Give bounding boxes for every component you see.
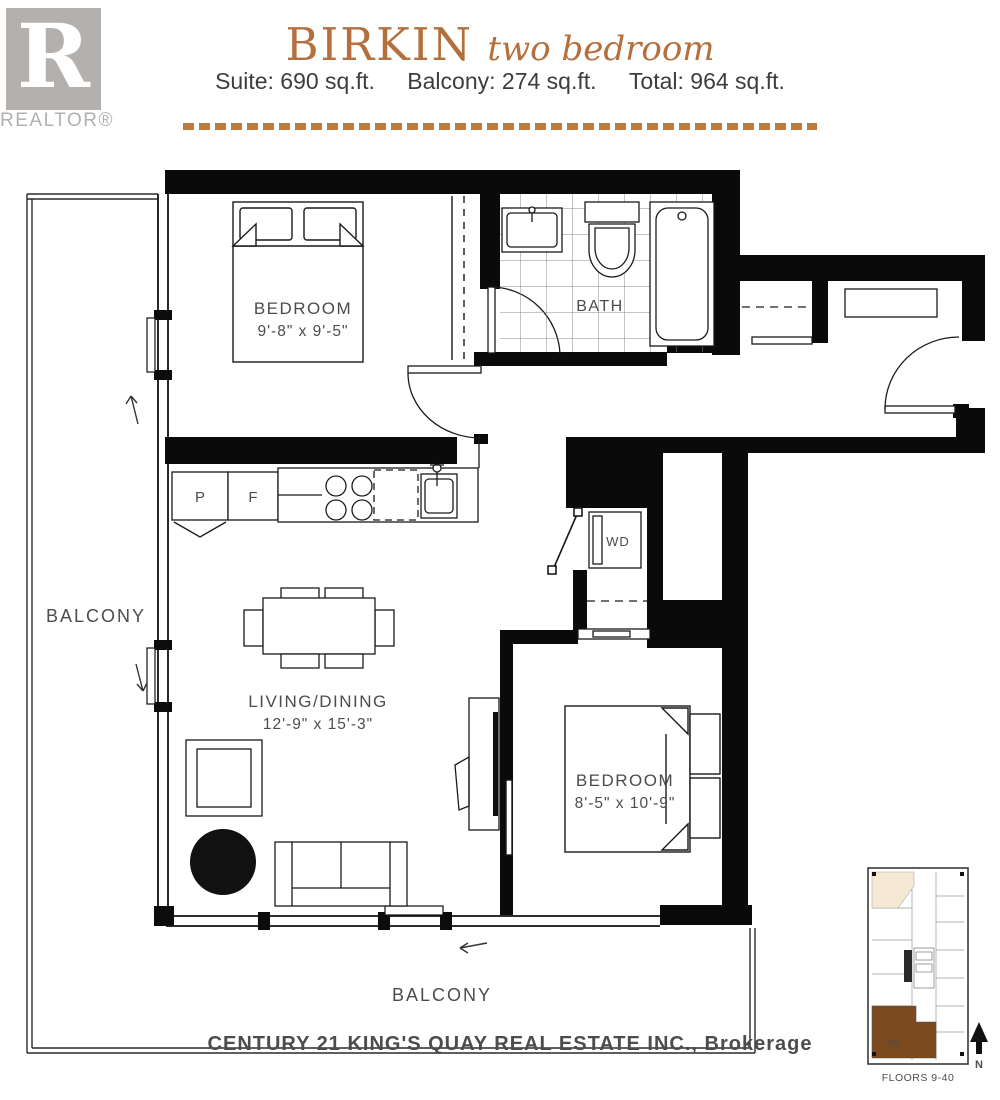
balcony-bottom-label: BALCONY xyxy=(392,985,492,1005)
bedroom2-door xyxy=(578,629,650,639)
bedroom2: BEDROOM 8'-5" x 10'-9" xyxy=(506,706,720,855)
kitchen: P F xyxy=(172,464,478,522)
bed2-headboard-bottom xyxy=(690,778,720,838)
bed2-headboard-top xyxy=(690,714,720,774)
north-arrow: N xyxy=(970,1022,988,1071)
bath-label: BATH xyxy=(576,298,623,315)
balcony-left-label: BALCONY xyxy=(46,606,146,626)
entry-closets xyxy=(742,289,937,344)
fridge-label: F xyxy=(248,489,257,506)
living-dining: LIVING/DINING 12'-9" x 15'-3" xyxy=(186,588,499,906)
bathtub xyxy=(650,202,714,346)
living-label: LIVING/DINING xyxy=(248,692,387,711)
entry-door xyxy=(885,337,959,413)
entry-shelf-right xyxy=(845,289,937,317)
floor-plan: BATH P F xyxy=(0,0,1000,1100)
bedroom1-door xyxy=(408,366,481,438)
laundry-label: WD xyxy=(606,534,630,549)
brokerage-watermark: CENTURY 21 KING'S QUAY REAL ESTATE INC.,… xyxy=(208,1033,813,1055)
laundry-closet: WD xyxy=(587,512,647,601)
dining-table xyxy=(263,598,375,654)
living-dims: 12'-9" x 15'-3" xyxy=(263,716,373,733)
bath-sink xyxy=(502,207,562,252)
toilet xyxy=(585,202,639,277)
keyplan-unit-label: 05 xyxy=(888,1038,900,1050)
bathroom: BATH xyxy=(500,194,714,352)
sofa xyxy=(275,842,407,906)
bedroom1-label: BEDROOM xyxy=(254,299,352,318)
dining-set xyxy=(244,588,394,668)
keyplan-floors-label: FLOORS 9-40 xyxy=(882,1072,955,1084)
entry-closet-shelf xyxy=(752,337,812,344)
armchair xyxy=(186,740,262,816)
bedroom1-dims: 9'-8" x 9'-5" xyxy=(257,323,348,340)
bedroom2-label: BEDROOM xyxy=(576,771,674,790)
laundry-bifold-door xyxy=(548,508,582,574)
bedroom2-dims: 8'-5" x 10'-9" xyxy=(575,795,676,812)
pantry-label: P xyxy=(195,489,205,506)
pantry-door xyxy=(174,522,226,537)
tv-console xyxy=(455,698,499,830)
north-label: N xyxy=(975,1059,983,1071)
bedroom1: BEDROOM 9'-8" x 9'-5" xyxy=(233,196,464,362)
keyplan: 05 N FLOORS 9-40 xyxy=(868,868,988,1084)
round-table xyxy=(190,829,256,895)
bedroom2-dresser xyxy=(506,780,512,855)
